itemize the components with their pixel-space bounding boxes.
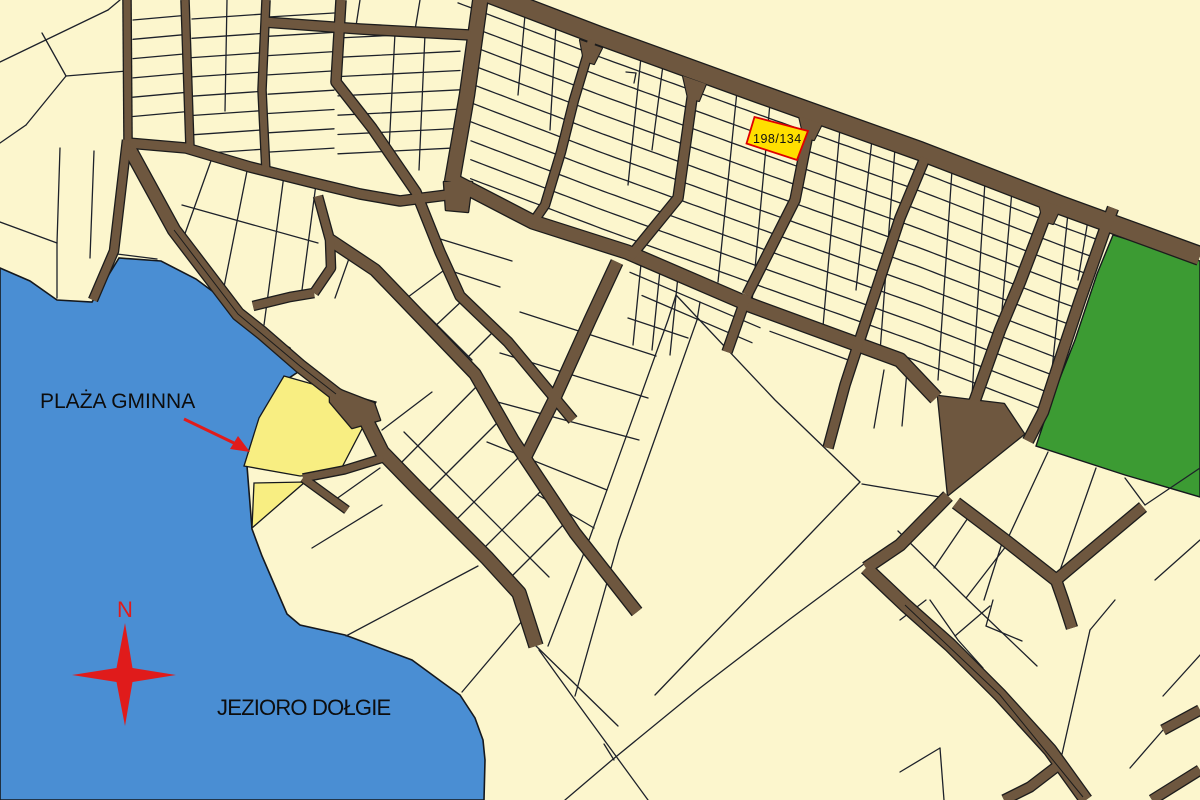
svg-text:JEZIORO DOŁGIE: JEZIORO DOŁGIE [217, 695, 391, 720]
svg-text:PLAŻA GMINNA: PLAŻA GMINNA [40, 390, 195, 413]
svg-text:198/134: 198/134 [753, 132, 802, 146]
svg-text:N: N [117, 597, 133, 622]
